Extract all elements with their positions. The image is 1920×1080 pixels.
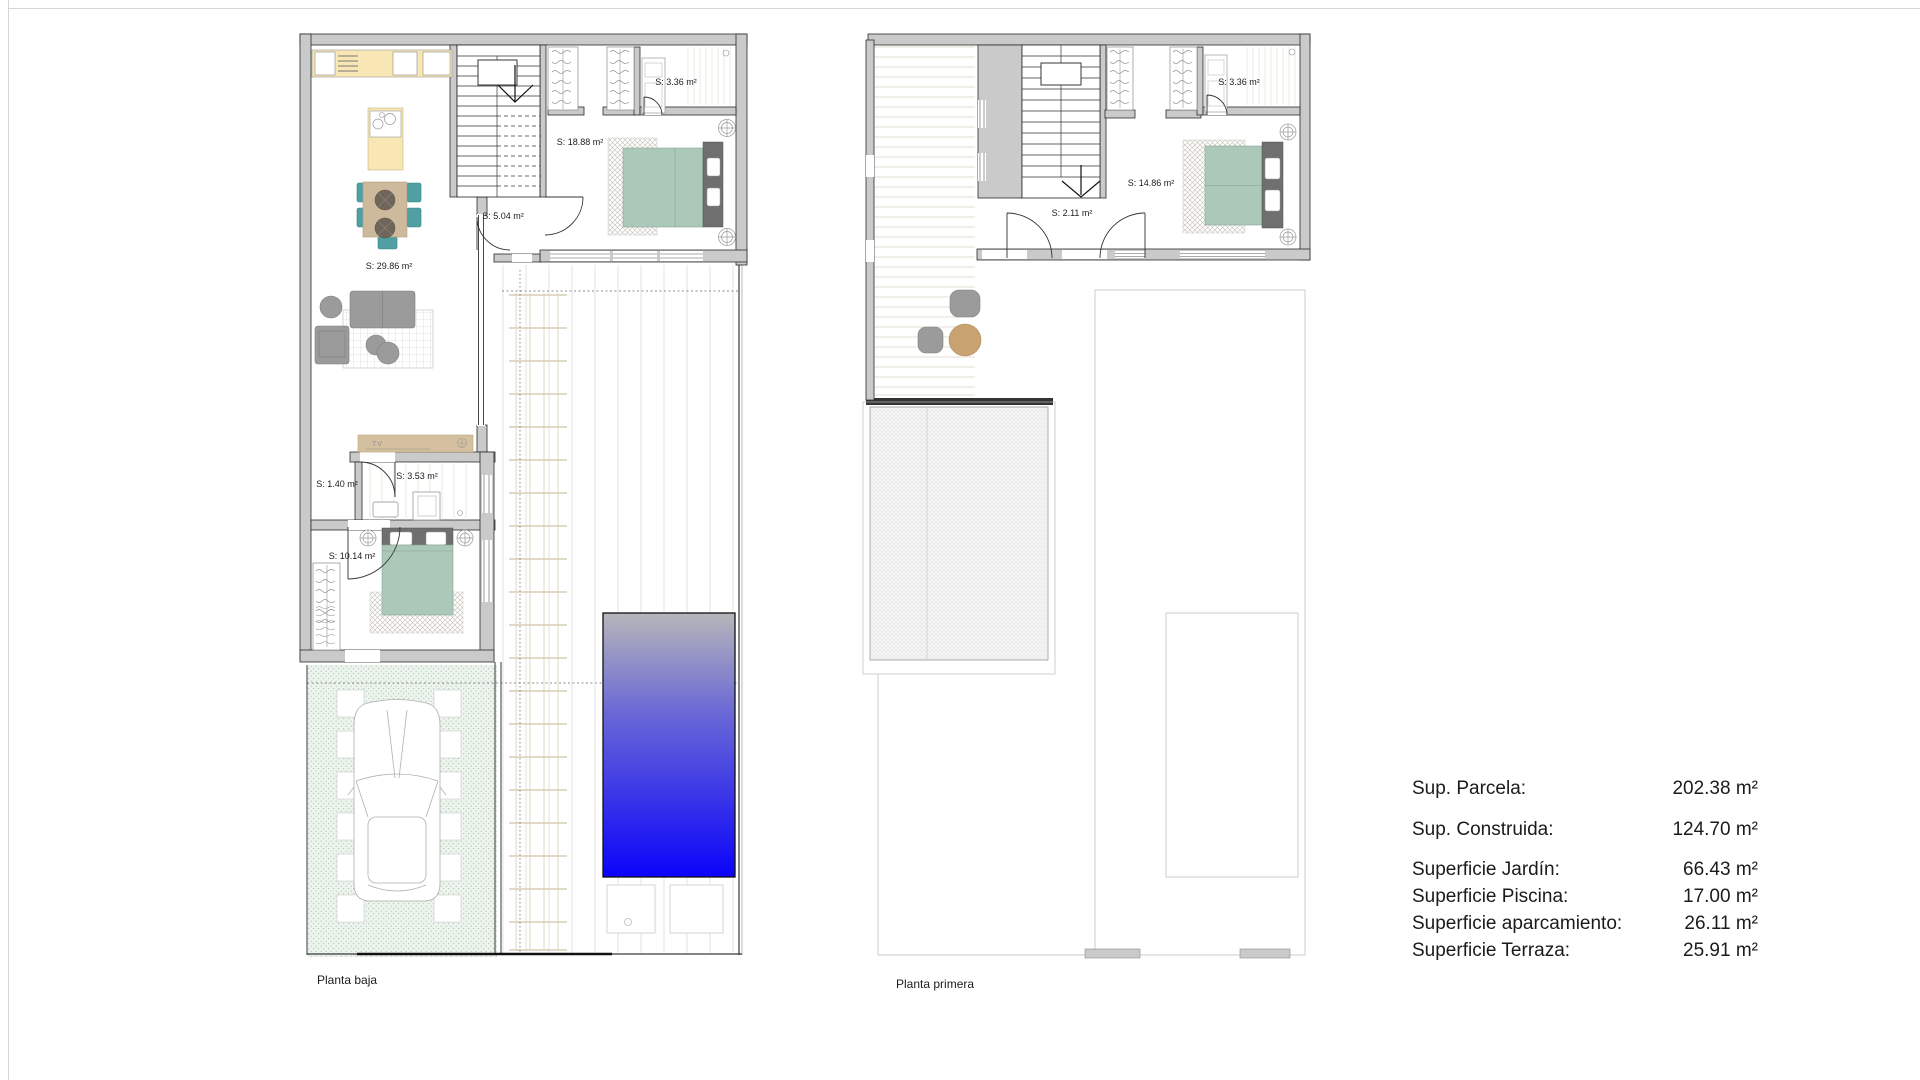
side-table: [320, 296, 342, 318]
legend-row-parcela: Sup. Parcela: 202.38 m²: [1412, 779, 1758, 799]
room-label-master: S: 18.88 m²: [557, 137, 604, 147]
legend-label: Sup. Construida:: [1412, 820, 1554, 840]
surface-legend: Sup. Parcela: 202.38 m² Sup. Construida:…: [1412, 779, 1758, 961]
legend-label: Superficie aparcamiento:: [1412, 914, 1622, 934]
ground-floor-plan: TV: [290, 25, 760, 1000]
bed-mattress: [623, 148, 703, 227]
pillow: [707, 158, 720, 176]
fridge: [315, 52, 335, 75]
legend-label: Sup. Parcela:: [1412, 779, 1526, 799]
terrace-furniture: [918, 290, 981, 356]
legend-label: Superficie Piscina:: [1412, 887, 1568, 907]
bath-floor: [688, 47, 730, 105]
gf-terrace: [502, 265, 739, 953]
room-label-living: S: 29.86 m²: [366, 261, 413, 271]
bed-headboard: [1262, 142, 1283, 228]
ff-stairs: [1022, 45, 1100, 198]
first-floor-plan: S: 3.36 m² S: 14.86 m² S: 2.11 m² Planta…: [855, 25, 1325, 1000]
gf-dining: [357, 182, 421, 249]
room-label-bath: S: 3.36 m²: [1218, 77, 1260, 87]
legend-value: 26.11 m²: [1684, 914, 1758, 934]
gf-tv-unit: TV: [358, 435, 473, 452]
legend-row-aparcamiento: Superficie aparcamiento: 26.11 m²: [1412, 914, 1758, 934]
legend-label: Superficie Jardín:: [1412, 860, 1560, 880]
room-label-bedroom2: S: 10.14 m²: [329, 551, 376, 561]
ff-bottom-ticks: [1085, 949, 1290, 958]
pillow: [390, 532, 412, 545]
wardrobe: [313, 563, 340, 650]
page-border-left: [8, 0, 9, 1080]
room-label-bedroom: S: 14.86 m²: [1128, 178, 1175, 188]
ground-floor-title: Planta baja: [317, 973, 377, 987]
pillow: [1265, 158, 1280, 179]
legend-value: 202.38 m²: [1672, 779, 1758, 799]
bath-floor: [1247, 47, 1295, 105]
swimming-pool: [603, 613, 735, 877]
legend-value: 17.00 m²: [1683, 887, 1758, 907]
bed-headboard: [703, 142, 723, 227]
pillow: [707, 188, 720, 206]
legend-value: 124.70 m²: [1672, 820, 1758, 840]
page-border-top: [8, 8, 1920, 9]
pool-equipment: [607, 885, 723, 933]
room-label-bath: S: 3.53 m²: [396, 471, 438, 481]
terrace-table: [949, 324, 981, 356]
legend-row-piscina: Superficie Piscina: 17.00 m²: [1412, 887, 1758, 907]
sink-cooktop: [370, 111, 401, 137]
legend-value: 66.43 m²: [1683, 860, 1758, 880]
gf-stairs: [457, 45, 540, 197]
room-label-hall: S: 2.11 m²: [1052, 208, 1093, 218]
legend-row-jardin: Superficie Jardín: 66.43 m²: [1412, 860, 1758, 880]
terrace-chair: [918, 327, 943, 353]
car: [348, 700, 446, 902]
legend-value: 25.91 m²: [1683, 941, 1758, 961]
toilet: [373, 502, 398, 517]
room-label-masterbath: S: 3.36 m²: [655, 77, 697, 87]
legend-row-terraza: Superficie Terraza: 25.91 m²: [1412, 941, 1758, 961]
gf-kitchen: [312, 50, 452, 170]
gf-living: [315, 291, 433, 368]
pillow: [1265, 190, 1280, 211]
bed-mattress: [382, 545, 453, 615]
tv-label: TV: [372, 441, 383, 448]
legend-label: Superficie Terraza:: [1412, 941, 1570, 961]
room-label-hall: S: 5.04 m²: [482, 211, 524, 221]
armchair: [315, 326, 349, 364]
terrace-edge: [866, 398, 1053, 405]
first-floor-title: Planta primera: [896, 977, 974, 991]
room-label-corridor: S: 1.40 m²: [316, 479, 358, 489]
pergola-grid: [509, 293, 567, 950]
ff-roof-area: [863, 402, 1055, 674]
legend-row-construida: Sup. Construida: 124.70 m²: [1412, 820, 1758, 840]
pouf: [377, 342, 399, 364]
pillow: [426, 532, 446, 545]
gf-bedroom2: [313, 528, 473, 650]
terrace-chair: [950, 290, 980, 317]
